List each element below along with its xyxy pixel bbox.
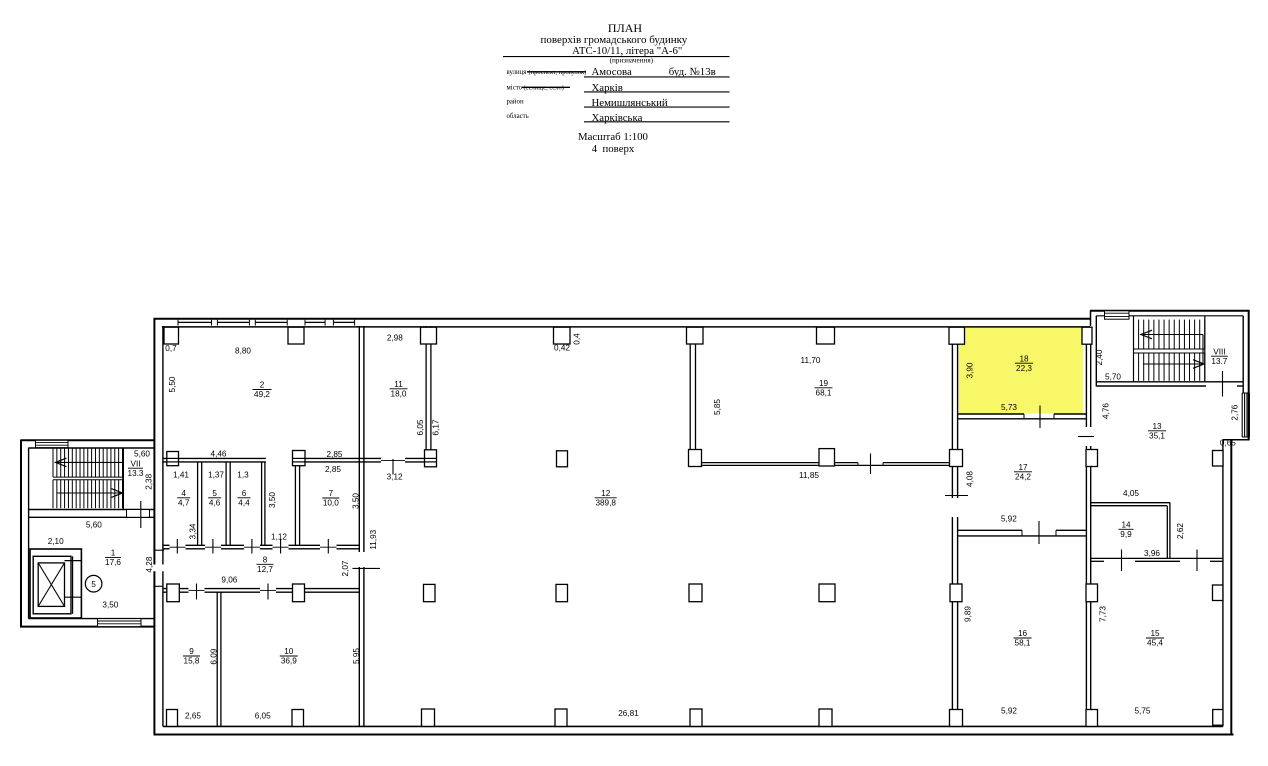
svg-text:1,41: 1,41 <box>173 471 189 480</box>
svg-text:область: область <box>507 113 529 120</box>
svg-text:3,34: 3,34 <box>189 523 198 539</box>
svg-text:36,9: 36,9 <box>281 657 297 666</box>
svg-text:5,50: 5,50 <box>168 376 177 392</box>
svg-text:22,3: 22,3 <box>1016 364 1032 373</box>
svg-text:4,46: 4,46 <box>211 449 227 458</box>
svg-text:АТС-10/11, літера "А-6": АТС-10/11, літера "А-6" <box>572 45 682 57</box>
svg-text:7,73: 7,73 <box>1099 606 1108 622</box>
svg-text:17: 17 <box>1018 463 1028 472</box>
svg-text:1,12: 1,12 <box>271 533 287 542</box>
svg-text:5: 5 <box>212 489 217 498</box>
svg-text:8: 8 <box>263 556 268 565</box>
svg-text:5,92: 5,92 <box>1001 515 1017 524</box>
svg-text:0,65: 0,65 <box>1220 439 1236 448</box>
svg-text:5: 5 <box>91 580 96 589</box>
svg-text:2,85: 2,85 <box>325 465 341 474</box>
svg-text:4 поверх: 4 поверх <box>592 143 635 155</box>
svg-text:4,7: 4,7 <box>178 498 190 507</box>
svg-text:12: 12 <box>601 489 611 498</box>
svg-text:5,70: 5,70 <box>1105 373 1121 382</box>
svg-text:13.7: 13.7 <box>1211 357 1227 366</box>
svg-text:Амосова: Амосова <box>592 66 632 78</box>
svg-text:12,7: 12,7 <box>257 565 273 574</box>
svg-text:11: 11 <box>394 380 403 389</box>
svg-text:2,76: 2,76 <box>1230 404 1239 420</box>
svg-text:68,1: 68,1 <box>816 388 832 397</box>
svg-text:0,42: 0,42 <box>554 344 570 353</box>
svg-text:14: 14 <box>1121 521 1131 530</box>
svg-text:1,37: 1,37 <box>208 471 224 480</box>
svg-text:18: 18 <box>1019 354 1029 363</box>
svg-text:0,4: 0,4 <box>572 333 581 345</box>
svg-text:6,17: 6,17 <box>431 419 440 435</box>
svg-text:5,60: 5,60 <box>134 449 150 458</box>
svg-text:3,50: 3,50 <box>268 492 277 508</box>
svg-text:7: 7 <box>329 489 334 498</box>
svg-text:4,08: 4,08 <box>966 471 975 487</box>
svg-text:2: 2 <box>260 381 265 390</box>
svg-text:58,1: 58,1 <box>1015 639 1031 648</box>
svg-text:9,89: 9,89 <box>964 606 973 622</box>
svg-text:(призначення): (призначення) <box>610 57 654 65</box>
svg-text:6,05: 6,05 <box>416 419 425 435</box>
svg-text:16: 16 <box>1018 629 1028 638</box>
svg-text:4,28: 4,28 <box>145 556 154 572</box>
svg-text:2,62: 2,62 <box>1176 523 1185 539</box>
svg-text:вулиця: вулиця <box>507 69 527 76</box>
svg-text:2,07: 2,07 <box>341 560 350 576</box>
svg-text:9,06: 9,06 <box>221 576 237 585</box>
svg-text:8,80: 8,80 <box>235 347 251 356</box>
svg-text:49,2: 49,2 <box>254 390 270 399</box>
svg-text:13.3: 13.3 <box>128 469 144 478</box>
svg-text:11,85: 11,85 <box>799 471 819 480</box>
svg-text:6,05: 6,05 <box>255 712 271 721</box>
svg-text:18,0: 18,0 <box>391 389 407 398</box>
svg-text:389,8: 389,8 <box>595 498 616 507</box>
svg-text:17,6: 17,6 <box>105 558 121 567</box>
svg-text:5,73: 5,73 <box>1001 403 1017 412</box>
svg-text:3,50: 3,50 <box>352 493 361 509</box>
svg-text:35,1: 35,1 <box>1149 431 1165 440</box>
svg-text:місто: місто <box>507 85 523 92</box>
svg-text:4,4: 4,4 <box>238 498 250 507</box>
svg-text:26,81: 26,81 <box>618 709 639 718</box>
svg-text:3,12: 3,12 <box>387 473 403 482</box>
svg-text:9,9: 9,9 <box>1120 530 1132 539</box>
svg-text:2,65: 2,65 <box>185 712 201 721</box>
svg-text:2,98: 2,98 <box>387 334 403 343</box>
svg-text:45,4: 45,4 <box>1147 639 1163 648</box>
svg-text:1,3: 1,3 <box>237 471 249 480</box>
svg-text:11,70: 11,70 <box>801 356 821 365</box>
svg-text:5,85: 5,85 <box>713 399 722 415</box>
svg-text:24,2: 24,2 <box>1015 472 1031 481</box>
svg-text:5,92: 5,92 <box>1001 707 1017 716</box>
svg-text:2,40: 2,40 <box>1095 349 1104 365</box>
svg-text:4: 4 <box>181 489 186 498</box>
svg-text:5,60: 5,60 <box>86 521 102 530</box>
svg-text:5,75: 5,75 <box>1135 707 1151 716</box>
svg-text:4,05: 4,05 <box>1123 489 1139 498</box>
svg-text:Масштаб 1:100: Масштаб 1:100 <box>578 131 648 143</box>
svg-text:ПЛАН: ПЛАН <box>608 21 642 35</box>
svg-text:19: 19 <box>819 379 829 388</box>
svg-text:3,50: 3,50 <box>102 601 118 610</box>
svg-text:2,85: 2,85 <box>327 450 343 459</box>
svg-text:6: 6 <box>242 489 247 498</box>
svg-text:13: 13 <box>1152 422 1162 431</box>
svg-text:4,6: 4,6 <box>209 498 221 507</box>
svg-text:VII: VII <box>130 459 140 468</box>
svg-text:10,0: 10,0 <box>323 499 339 508</box>
svg-text:11,93: 11,93 <box>369 529 378 549</box>
svg-text:5,95: 5,95 <box>352 648 361 664</box>
svg-text:буд. №13в: буд. №13в <box>669 66 716 78</box>
svg-text:2,10: 2,10 <box>48 537 64 546</box>
svg-text:4,76: 4,76 <box>1102 403 1111 419</box>
svg-text:1: 1 <box>111 549 116 558</box>
svg-text:2,38: 2,38 <box>145 473 154 489</box>
svg-text:3,96: 3,96 <box>1144 549 1160 558</box>
svg-text:10: 10 <box>284 647 294 656</box>
svg-text:6,09: 6,09 <box>210 648 219 664</box>
svg-text:15: 15 <box>1150 629 1160 638</box>
svg-text:0,7: 0,7 <box>165 344 177 353</box>
svg-text:3,90: 3,90 <box>965 362 974 378</box>
svg-text:VIII: VIII <box>1213 347 1225 356</box>
svg-text:15,8: 15,8 <box>184 657 200 666</box>
svg-text:9: 9 <box>189 647 194 656</box>
svg-text:район: район <box>507 99 524 106</box>
